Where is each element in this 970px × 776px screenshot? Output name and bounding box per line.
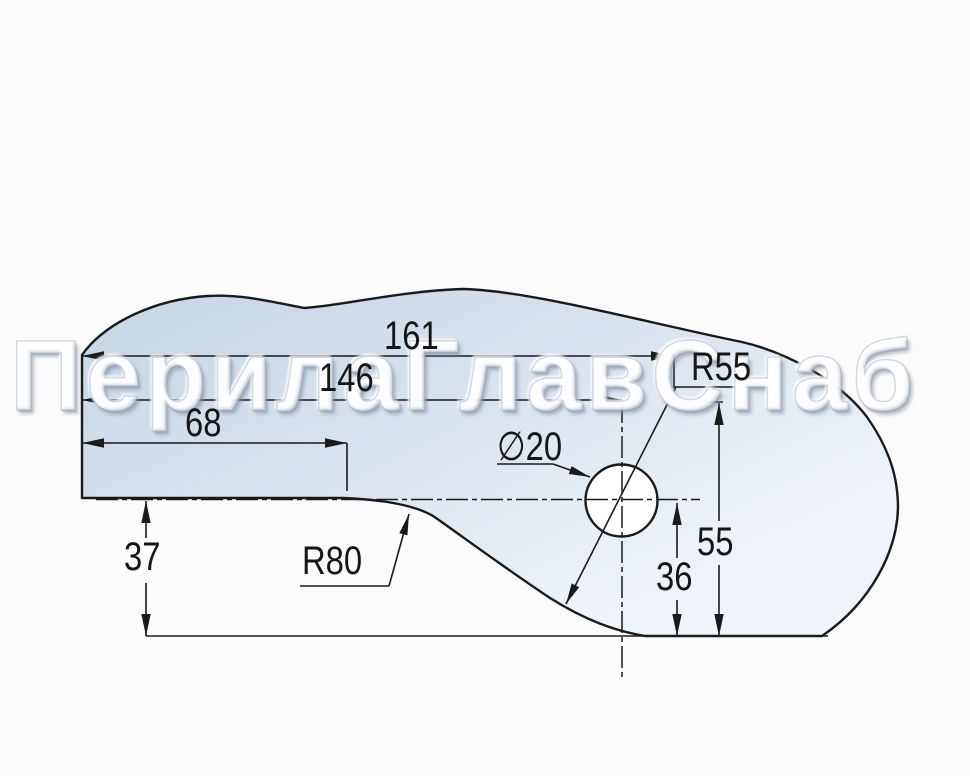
arrow-r80-leader (399, 514, 409, 535)
part-outline (82, 289, 898, 636)
drawing-svg (0, 0, 970, 776)
drawing-canvas: ПерилаГлавСнаб 161 146 68 R55 ∅20 55 36 … (0, 0, 970, 776)
arrow-37-top (141, 501, 150, 523)
arrow-37-bottom (141, 614, 150, 636)
